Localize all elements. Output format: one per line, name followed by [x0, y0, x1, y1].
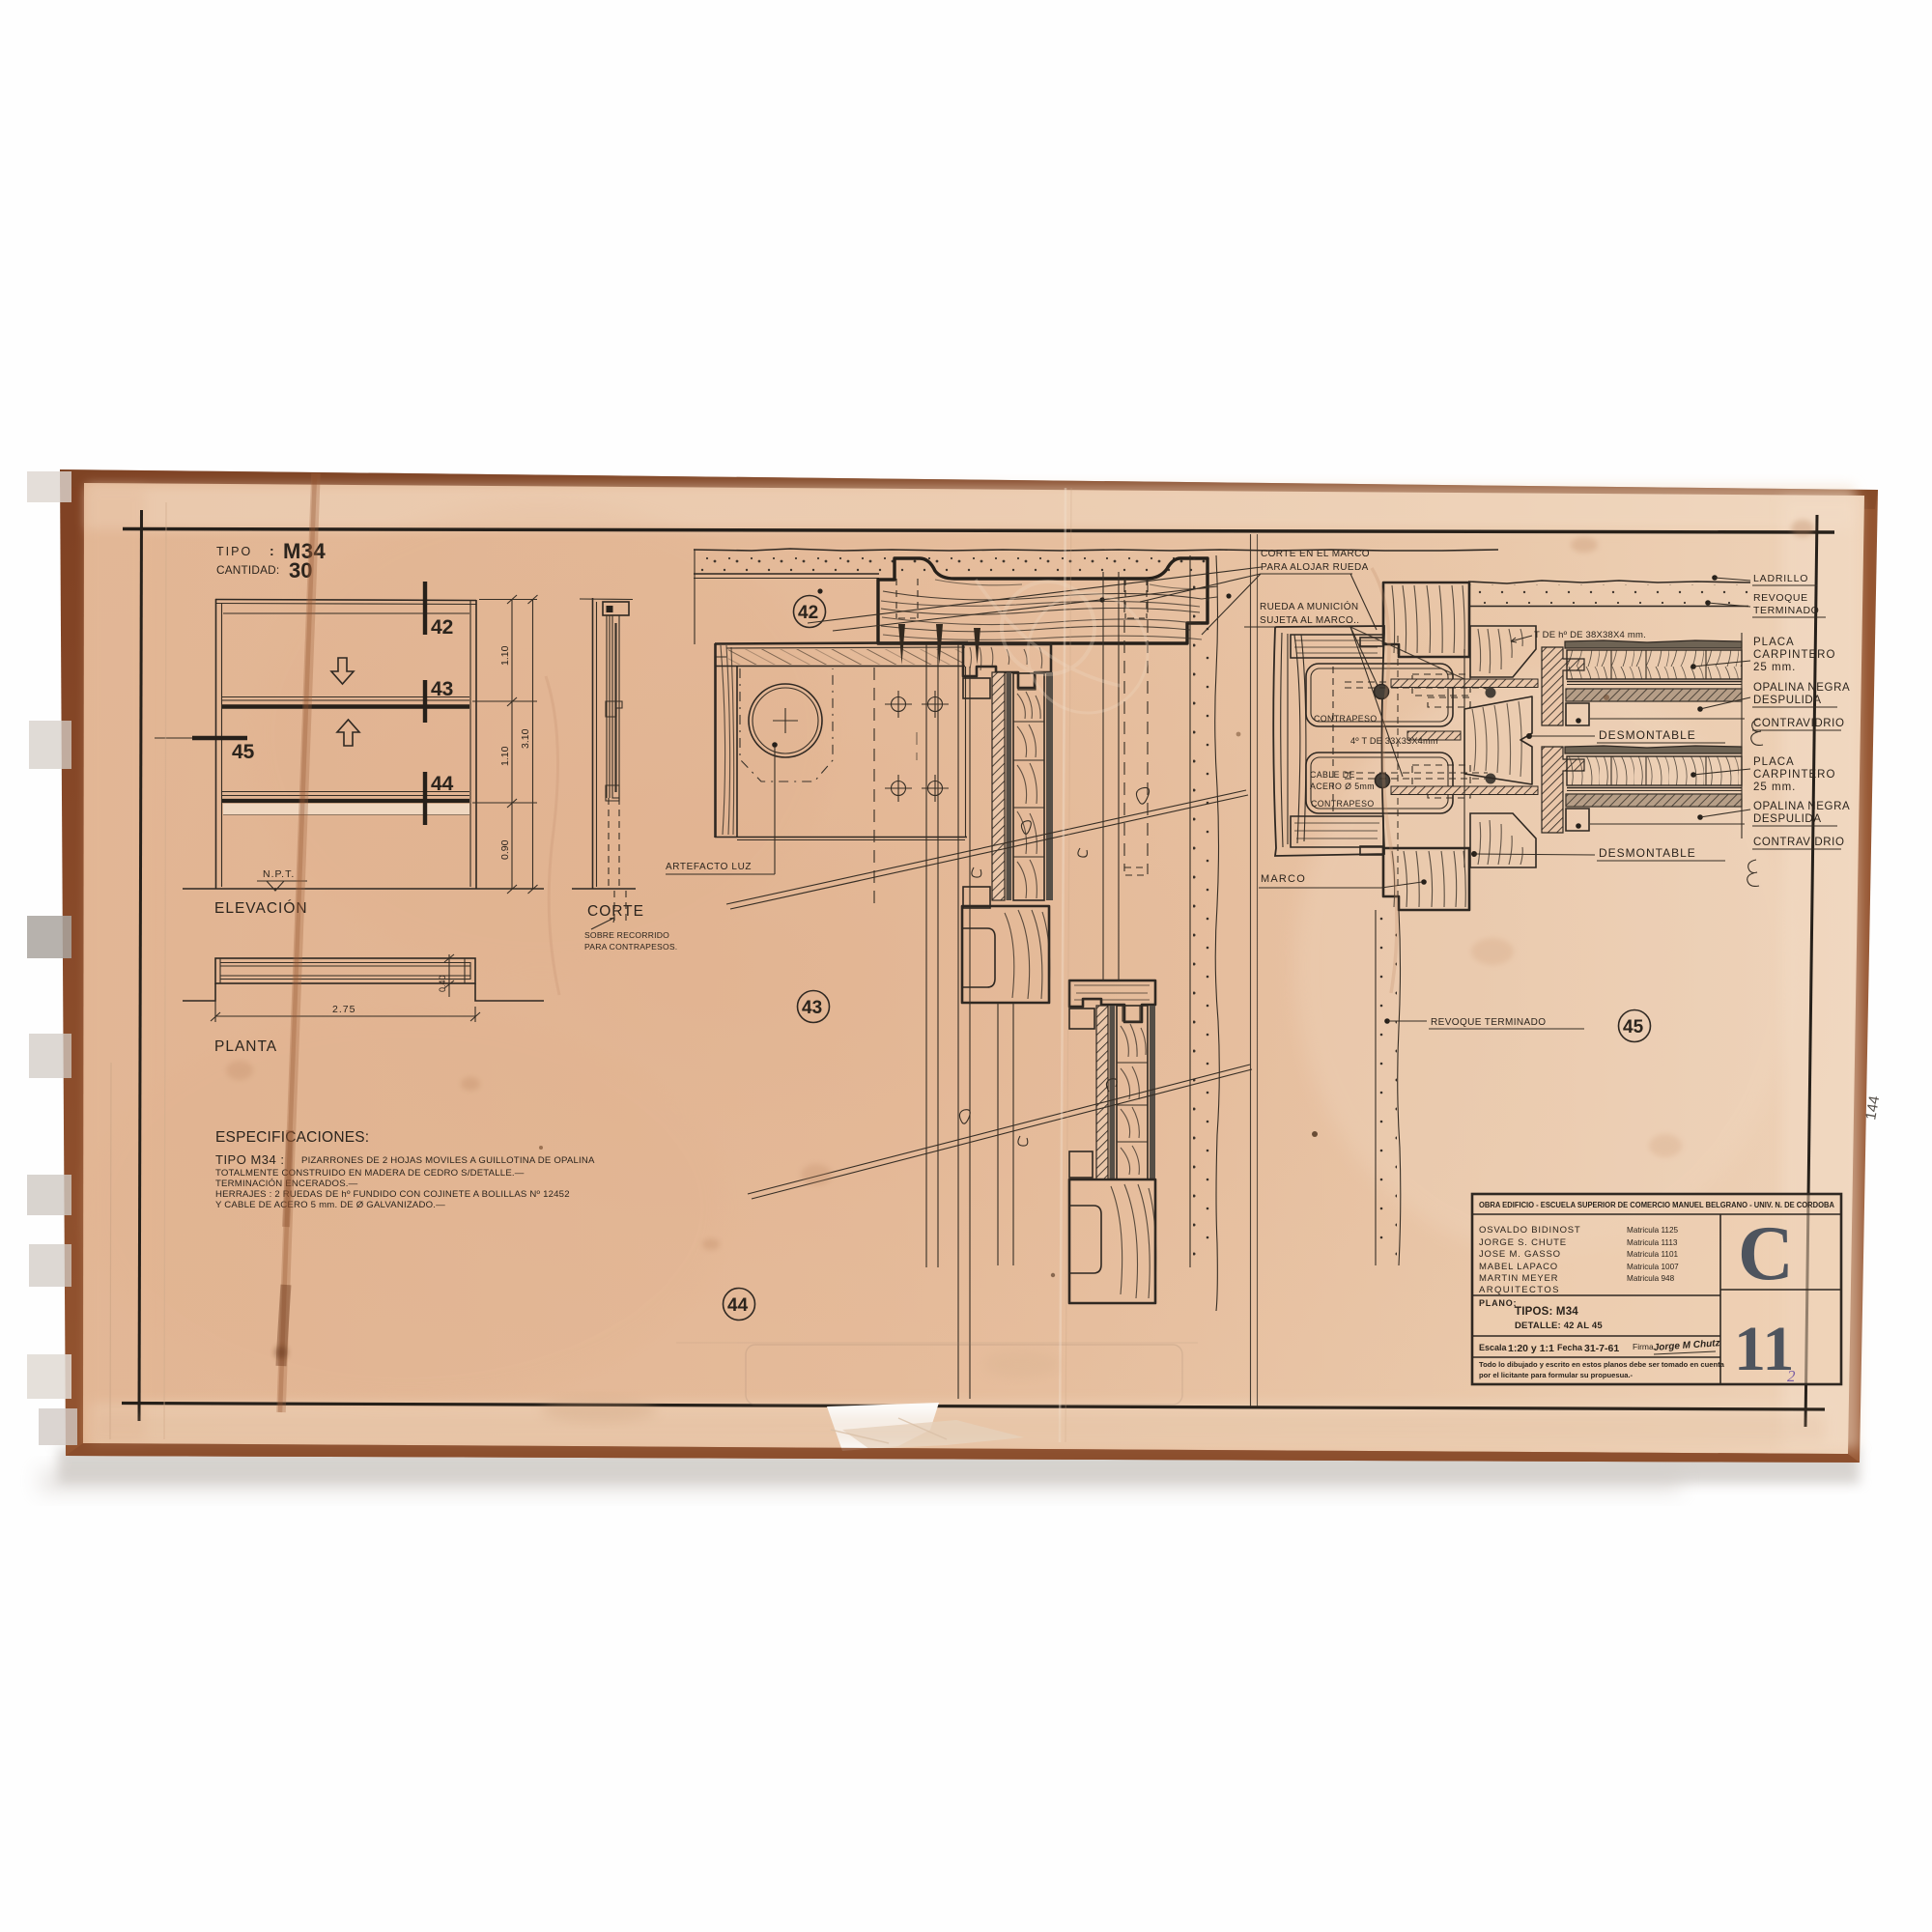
svg-text:REVOQUE: REVOQUE — [1753, 592, 1808, 604]
svg-text:TIPO: TIPO — [216, 545, 252, 558]
svg-text:Matricula 1007: Matricula 1007 — [1627, 1263, 1679, 1271]
svg-text:PIZARRONES DE 2 HOJAS MOVILES: PIZARRONES DE 2 HOJAS MOVILES A GUILLOTI… — [301, 1155, 595, 1166]
svg-text:TIPOS: M34: TIPOS: M34 — [1515, 1306, 1578, 1318]
svg-text:por el licitante para formular: por el licitante para formular su propue… — [1479, 1371, 1634, 1379]
svg-text:PARA ALOJAR RUEDA: PARA ALOJAR RUEDA — [1261, 562, 1369, 573]
svg-text:OSVALDO BIDINOST: OSVALDO BIDINOST — [1479, 1225, 1581, 1236]
svg-text:SUJETA AL MARCO..: SUJETA AL MARCO.. — [1260, 615, 1360, 626]
svg-text:45: 45 — [232, 741, 255, 763]
svg-text:Firma: Firma — [1633, 1342, 1654, 1351]
svg-text::: : — [270, 543, 274, 558]
svg-text:TERMINADO: TERMINADO — [1753, 605, 1819, 616]
svg-text:44: 44 — [727, 1295, 749, 1316]
svg-text:OPALINA NEGRA: OPALINA NEGRA — [1753, 682, 1850, 694]
svg-text:OBRA EDIFICIO - ESCUELA SUPERI: OBRA EDIFICIO - ESCUELA SUPERIOR DE COME… — [1479, 1201, 1834, 1209]
svg-text:JOSE M. GASSO: JOSE M. GASSO — [1479, 1249, 1561, 1260]
svg-text:Escala: Escala — [1479, 1343, 1508, 1352]
svg-text:4º T DE 33X33X4mm: 4º T DE 33X33X4mm — [1350, 736, 1438, 746]
svg-text:PARA CONTRAPESOS.: PARA CONTRAPESOS. — [584, 942, 677, 952]
svg-text:TIPO M34 :: TIPO M34 : — [215, 1152, 284, 1167]
svg-text:DETALLE: 42 AL 45: DETALLE: 42 AL 45 — [1515, 1321, 1603, 1331]
svg-text:CORTE: CORTE — [587, 903, 644, 920]
svg-text:DESPULIDA: DESPULIDA — [1753, 695, 1822, 706]
svg-text:C: C — [1738, 1211, 1794, 1296]
svg-text:2: 2 — [1787, 1367, 1796, 1385]
svg-text:MABEL LAPACO: MABEL LAPACO — [1479, 1262, 1558, 1272]
svg-text:CARPINTERO: CARPINTERO — [1753, 649, 1835, 661]
svg-text:Matricula 1113: Matricula 1113 — [1627, 1238, 1678, 1247]
svg-text:N.P.T.: N.P.T. — [263, 868, 295, 880]
svg-text:ELEVACIÓN: ELEVACIÓN — [214, 900, 308, 917]
svg-text:REVOQUE TERMINADO: REVOQUE TERMINADO — [1431, 1017, 1546, 1028]
svg-text:JORGE S. CHUTE: JORGE S. CHUTE — [1479, 1237, 1567, 1248]
svg-text:0.40: 0.40 — [438, 975, 447, 992]
svg-text:45: 45 — [1623, 1017, 1644, 1037]
svg-text:CARPINTERO: CARPINTERO — [1753, 769, 1835, 781]
svg-text:DESMONTABLE: DESMONTABLE — [1599, 846, 1696, 860]
svg-text:1.10: 1.10 — [499, 645, 511, 666]
svg-text:DESMONTABLE: DESMONTABLE — [1599, 728, 1696, 742]
svg-text:OPALINA NEGRA: OPALINA NEGRA — [1753, 801, 1850, 812]
svg-text:42: 42 — [431, 616, 453, 639]
svg-text:0.90: 0.90 — [499, 839, 511, 860]
svg-text:ARQUITECTOS: ARQUITECTOS — [1479, 1285, 1560, 1295]
svg-text:PLACA: PLACA — [1753, 637, 1795, 648]
svg-text:25 mm.: 25 mm. — [1753, 662, 1796, 673]
svg-text:CORTE EN EL MARCO: CORTE EN EL MARCO — [1261, 549, 1370, 559]
svg-text:RUEDA A MUNICIÓN: RUEDA A MUNICIÓN — [1260, 600, 1359, 612]
svg-text:CANTIDAD:: CANTIDAD: — [216, 563, 279, 577]
svg-text:Matricula 1101: Matricula 1101 — [1627, 1250, 1679, 1259]
svg-text:PLACA: PLACA — [1753, 756, 1795, 768]
svg-text:T DE hº DE 38X38X4 mm.: T DE hº DE 38X38X4 mm. — [1534, 630, 1646, 640]
svg-text:CONTRAVIDRIO: CONTRAVIDRIO — [1753, 718, 1845, 729]
svg-text:DESPULIDA: DESPULIDA — [1753, 813, 1822, 825]
svg-text:3.10: 3.10 — [520, 728, 531, 749]
svg-text:CONTRAPESO: CONTRAPESO — [1311, 799, 1375, 809]
svg-text:SOBRE RECORRIDO: SOBRE RECORRIDO — [584, 930, 669, 940]
svg-text:42: 42 — [798, 603, 818, 623]
svg-text:Todo lo dibujado y escrito en: Todo lo dibujado y escrito en estos plan… — [1479, 1360, 1725, 1369]
svg-text:1.10: 1.10 — [499, 746, 511, 766]
svg-text:CONTRAVIDRIO: CONTRAVIDRIO — [1753, 837, 1845, 848]
svg-text:HERRAJES : 2 RUEDAS DE hº FUND: HERRAJES : 2 RUEDAS DE hº FUNDIDO CON CO… — [215, 1189, 570, 1200]
svg-text:MARCO: MARCO — [1261, 873, 1306, 885]
svg-text:MARTIN MEYER: MARTIN MEYER — [1479, 1273, 1558, 1284]
svg-text:PLANO;: PLANO; — [1479, 1298, 1517, 1308]
svg-text:Matricula 948: Matricula 948 — [1627, 1274, 1675, 1283]
svg-text:1:20 y 1:1: 1:20 y 1:1 — [1508, 1343, 1554, 1354]
svg-text:44: 44 — [431, 773, 454, 795]
svg-text:43: 43 — [431, 678, 453, 700]
svg-text:TOTALMENTE CONSTRUIDO EN MADER: TOTALMENTE CONSTRUIDO EN MADERA DE CEDRO… — [215, 1168, 525, 1179]
svg-text:31-7-61: 31-7-61 — [1584, 1343, 1619, 1354]
svg-text:25 mm.: 25 mm. — [1753, 781, 1796, 793]
svg-text:CONTRAPESO: CONTRAPESO — [1314, 714, 1378, 724]
svg-text:LADRILLO: LADRILLO — [1753, 573, 1808, 584]
svg-text:43: 43 — [802, 998, 822, 1018]
svg-text:2.75: 2.75 — [332, 1004, 355, 1015]
svg-text:11: 11 — [1734, 1314, 1794, 1384]
svg-text:Matricula 1125: Matricula 1125 — [1627, 1226, 1679, 1235]
svg-text:Y CABLE DE ACERO 5 mm. DE Ø GA: Y CABLE DE ACERO 5 mm. DE Ø GALVANIZADO.… — [215, 1200, 445, 1210]
svg-text:Fecha: Fecha — [1557, 1343, 1583, 1352]
svg-text:ACERO Ø 5mm: ACERO Ø 5mm — [1310, 781, 1375, 791]
svg-text:PLANTA: PLANTA — [214, 1038, 277, 1055]
svg-text:ARTEFACTO LUZ: ARTEFACTO LUZ — [666, 862, 752, 872]
